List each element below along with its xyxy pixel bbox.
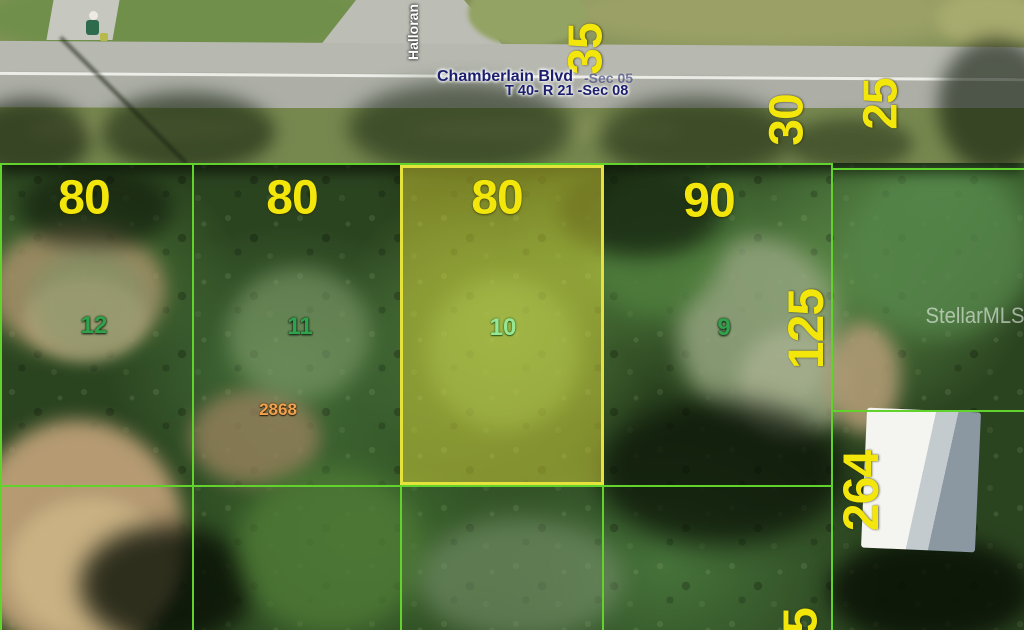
dimension-label-rotated: 35 — [559, 23, 614, 74]
parcel-boundary-line — [832, 168, 1024, 170]
dirt-patch — [190, 390, 320, 485]
clearing-patch — [28, 248, 150, 360]
parcel-boundary-line — [192, 163, 194, 630]
dimension-label-rotated: 30 — [760, 94, 815, 145]
township-range-label: T 40- R 21 -Sec 08 — [505, 83, 628, 99]
aerial-parcel-map: 80 80 80 90 35 30 25 125 264 5 12 11 10 … — [0, 0, 1024, 630]
mls-watermark: StellarMLS — [926, 303, 1024, 329]
driveway — [46, 0, 119, 40]
parcel-boundary-line — [602, 485, 604, 630]
dimension-label-rotated: 264 — [832, 451, 890, 531]
lot-number: 11 — [287, 313, 312, 341]
dimension-label-rotated: 25 — [854, 78, 909, 129]
mailbox — [89, 11, 98, 20]
tree-shadow — [598, 400, 843, 545]
parcel-boundary-line — [832, 410, 1024, 412]
cross-street-name-label: Halloran — [405, 4, 421, 60]
lot-number-highlighted: 10 — [490, 314, 517, 342]
dimension-label: 80 — [266, 171, 317, 226]
dimension-label-rotated: 5 — [774, 608, 829, 630]
utility-marker — [100, 33, 108, 41]
clearing-patch — [418, 518, 623, 630]
dimension-label: 80 — [58, 171, 109, 226]
parcel-boundary-line — [831, 163, 833, 630]
lot-number: 9 — [717, 314, 730, 342]
dimension-label: 80 — [471, 171, 522, 226]
grass-patch — [555, 0, 985, 50]
tree-canopy-patch — [238, 468, 423, 630]
parcel-boundary-line — [400, 485, 402, 630]
lot-number: 12 — [81, 312, 108, 340]
trash-bin — [86, 20, 99, 35]
dimension-label-rotated: 125 — [777, 289, 835, 369]
dimension-label: 90 — [683, 174, 734, 229]
parcel-boundary-line — [0, 163, 2, 630]
parcel-boundary-line — [0, 485, 832, 487]
parcel-id-label: 2868 — [259, 400, 297, 420]
